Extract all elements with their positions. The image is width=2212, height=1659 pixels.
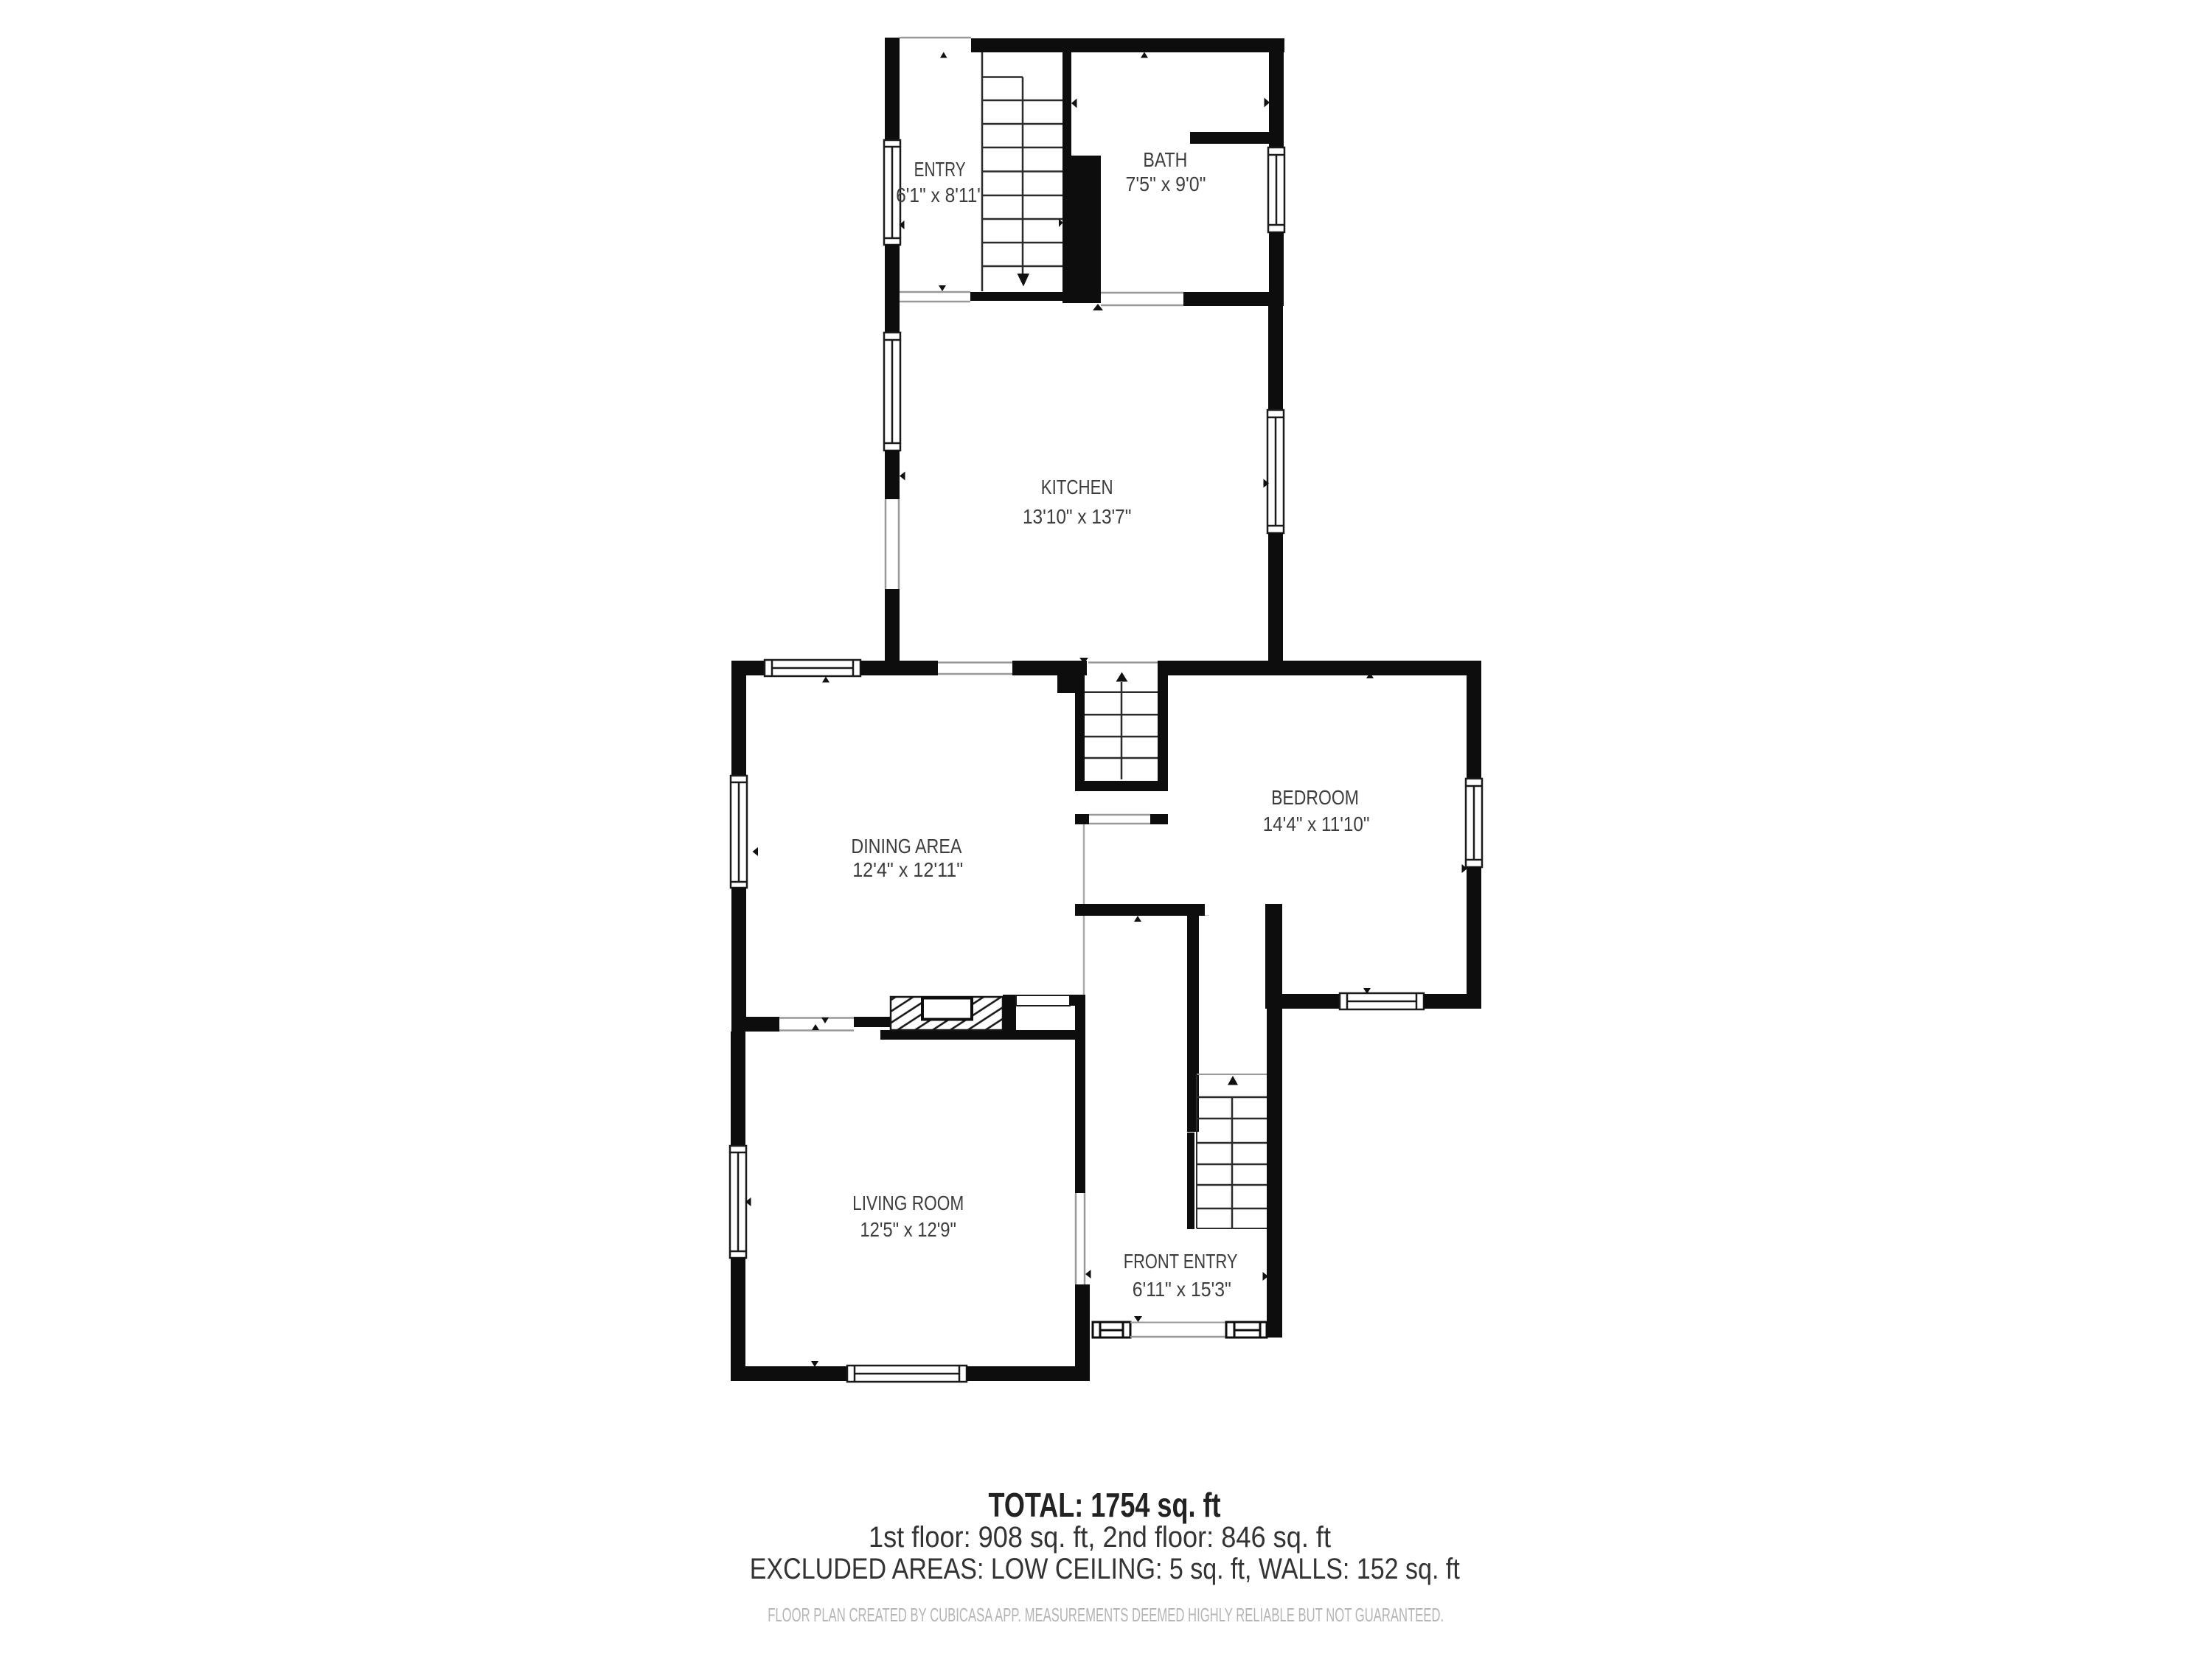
- svg-text:6'11" x 15'3": 6'11" x 15'3": [1133, 1278, 1231, 1301]
- svg-text:12'5" x 12'9": 12'5" x 12'9": [860, 1218, 956, 1241]
- svg-text:KITCHEN: KITCHEN: [1041, 476, 1113, 498]
- svg-text:1st floor: 908 sq. ft, 2nd flo: 1st floor: 908 sq. ft, 2nd floor: 846 sq…: [869, 1521, 1331, 1554]
- svg-text:7'5" x 9'0": 7'5" x 9'0": [1126, 173, 1206, 195]
- svg-text:DINING AREA: DINING AREA: [851, 835, 961, 858]
- svg-text:EXCLUDED AREAS: LOW CEILING: 5: EXCLUDED AREAS: LOW CEILING: 5 sq. ft, W…: [750, 1553, 1460, 1585]
- svg-text:13'10" x 13'7": 13'10" x 13'7": [1023, 505, 1132, 528]
- svg-text:ENTRY: ENTRY: [914, 158, 966, 181]
- svg-text:BATH: BATH: [1143, 148, 1187, 171]
- svg-text:6'1" x 8'11": 6'1" x 8'11": [896, 184, 984, 206]
- svg-text:TOTAL: 1754 sq. ft: TOTAL: 1754 sq. ft: [989, 1486, 1221, 1524]
- svg-text:FRONT ENTRY: FRONT ENTRY: [1124, 1250, 1238, 1273]
- svg-text:FLOOR PLAN CREATED BY CUBICASA: FLOOR PLAN CREATED BY CUBICASA APP. MEAS…: [768, 1604, 1444, 1626]
- svg-text:LIVING ROOM: LIVING ROOM: [852, 1192, 964, 1214]
- svg-text:14'4" x 11'10": 14'4" x 11'10": [1263, 813, 1370, 835]
- svg-text:12'4" x 12'11": 12'4" x 12'11": [852, 858, 963, 881]
- svg-text:BEDROOM: BEDROOM: [1271, 786, 1359, 809]
